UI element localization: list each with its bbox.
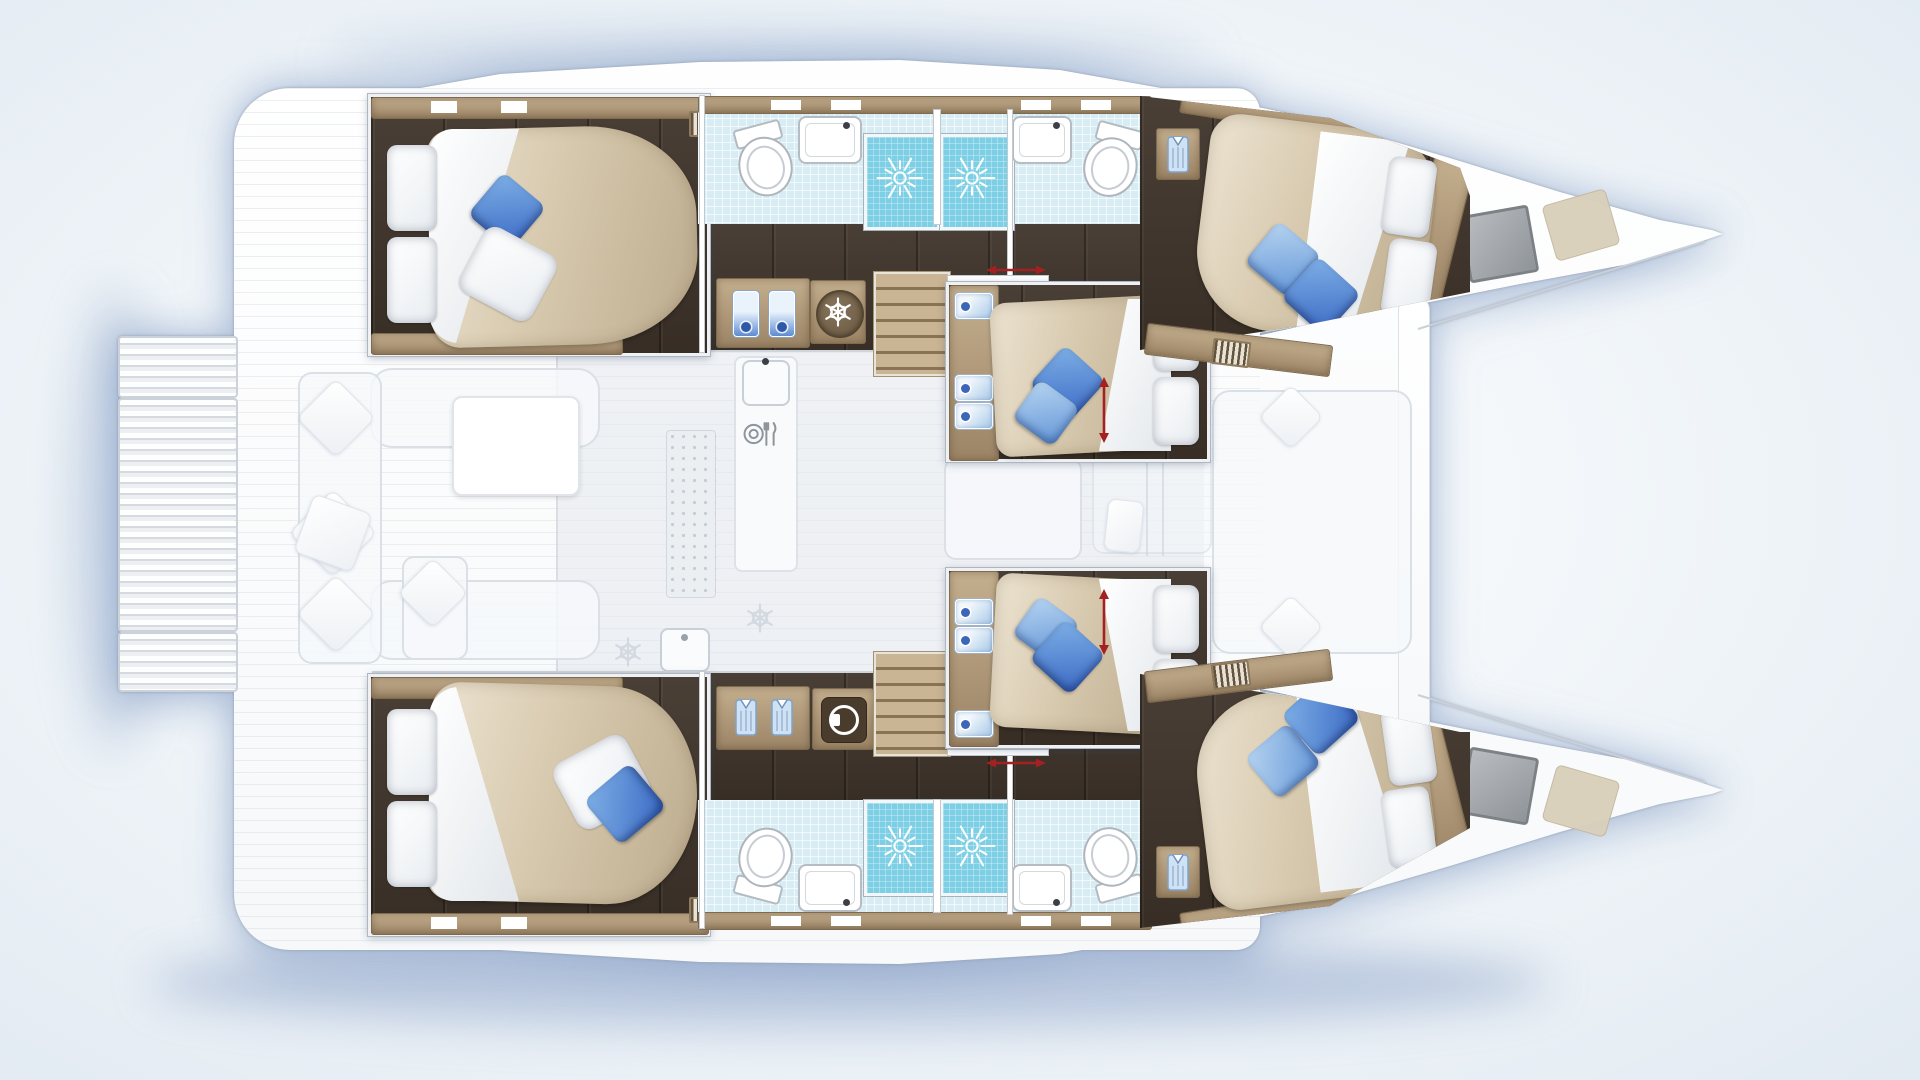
bathroom-divider-wall — [934, 110, 940, 224]
fridge-module — [810, 280, 866, 344]
vent-grille-icon — [1211, 660, 1252, 690]
glassware — [733, 291, 759, 337]
window-slot — [771, 916, 801, 926]
washbasin — [955, 627, 993, 653]
glassware — [769, 291, 795, 337]
washbasin — [955, 599, 993, 625]
catamaran-floor-plan — [0, 0, 1920, 1080]
vent-grille-icon — [1211, 338, 1252, 368]
bathroom-sink — [1012, 864, 1072, 912]
snowflake-icon — [822, 296, 854, 328]
sunburst-shower-icon — [944, 818, 1000, 874]
lower-deck-layer — [0, 0, 1920, 1080]
window-slot — [501, 917, 527, 929]
bed-pillow — [1380, 703, 1438, 787]
wardrobe — [1156, 128, 1200, 180]
bed-pillow — [1153, 377, 1199, 445]
bed-pillow — [387, 709, 437, 795]
stairs-starboard — [874, 652, 950, 756]
cabin-stbd-aft — [368, 674, 710, 936]
window-slot — [501, 101, 527, 113]
corridor-cabinet — [716, 278, 810, 348]
window-slot — [1021, 100, 1051, 110]
bathroom-sink — [1012, 116, 1072, 164]
shirt-icon — [733, 697, 759, 737]
washing-machine-icon — [821, 697, 867, 743]
bed-pillow — [387, 145, 437, 231]
double-arrow-vertical-icon — [1097, 377, 1111, 443]
wardrobe-cabinet — [716, 686, 810, 750]
bathroom-divider-wall — [934, 800, 940, 912]
double-arrow-horizontal-icon — [986, 756, 1046, 770]
window-slot — [1021, 916, 1051, 926]
sunburst-shower-icon — [872, 818, 928, 874]
cabin-wall-trim — [371, 97, 709, 119]
cabin-wall-trim — [371, 913, 709, 935]
wardrobe — [1156, 846, 1200, 898]
shirt-icon — [1165, 852, 1191, 892]
double-arrow-vertical-icon — [1097, 589, 1111, 655]
bulkhead — [700, 96, 704, 352]
bathroom-sink — [798, 116, 862, 164]
cabin-port-aft — [368, 94, 710, 356]
window-slot — [831, 100, 861, 110]
double-arrow-horizontal-icon — [986, 263, 1046, 277]
bulkhead — [700, 672, 704, 928]
washbasin — [955, 711, 993, 737]
sunburst-shower-icon — [872, 150, 928, 206]
window-slot — [771, 100, 801, 110]
washbasin — [955, 293, 993, 319]
washbasin — [955, 403, 993, 429]
bed-pillow — [387, 237, 437, 323]
bathroom-sink — [798, 864, 862, 912]
stairs-port — [874, 272, 950, 376]
washer-module — [812, 688, 874, 750]
bathroom-port-wall — [698, 96, 1152, 114]
bed-pillow — [1153, 585, 1199, 653]
window-slot — [1081, 100, 1111, 110]
window-slot — [1081, 916, 1111, 926]
bed-pillow — [387, 801, 437, 887]
bathroom-stbd-wall — [698, 912, 1152, 930]
washbasin — [955, 375, 993, 401]
window-slot — [431, 917, 457, 929]
sunburst-shower-icon — [944, 150, 1000, 206]
shirt-icon — [1165, 134, 1191, 174]
sliding-door-track — [948, 750, 1048, 755]
shirt-icon — [769, 697, 795, 737]
bed-pillow — [1380, 237, 1438, 321]
window-slot — [431, 101, 457, 113]
window-slot — [831, 916, 861, 926]
